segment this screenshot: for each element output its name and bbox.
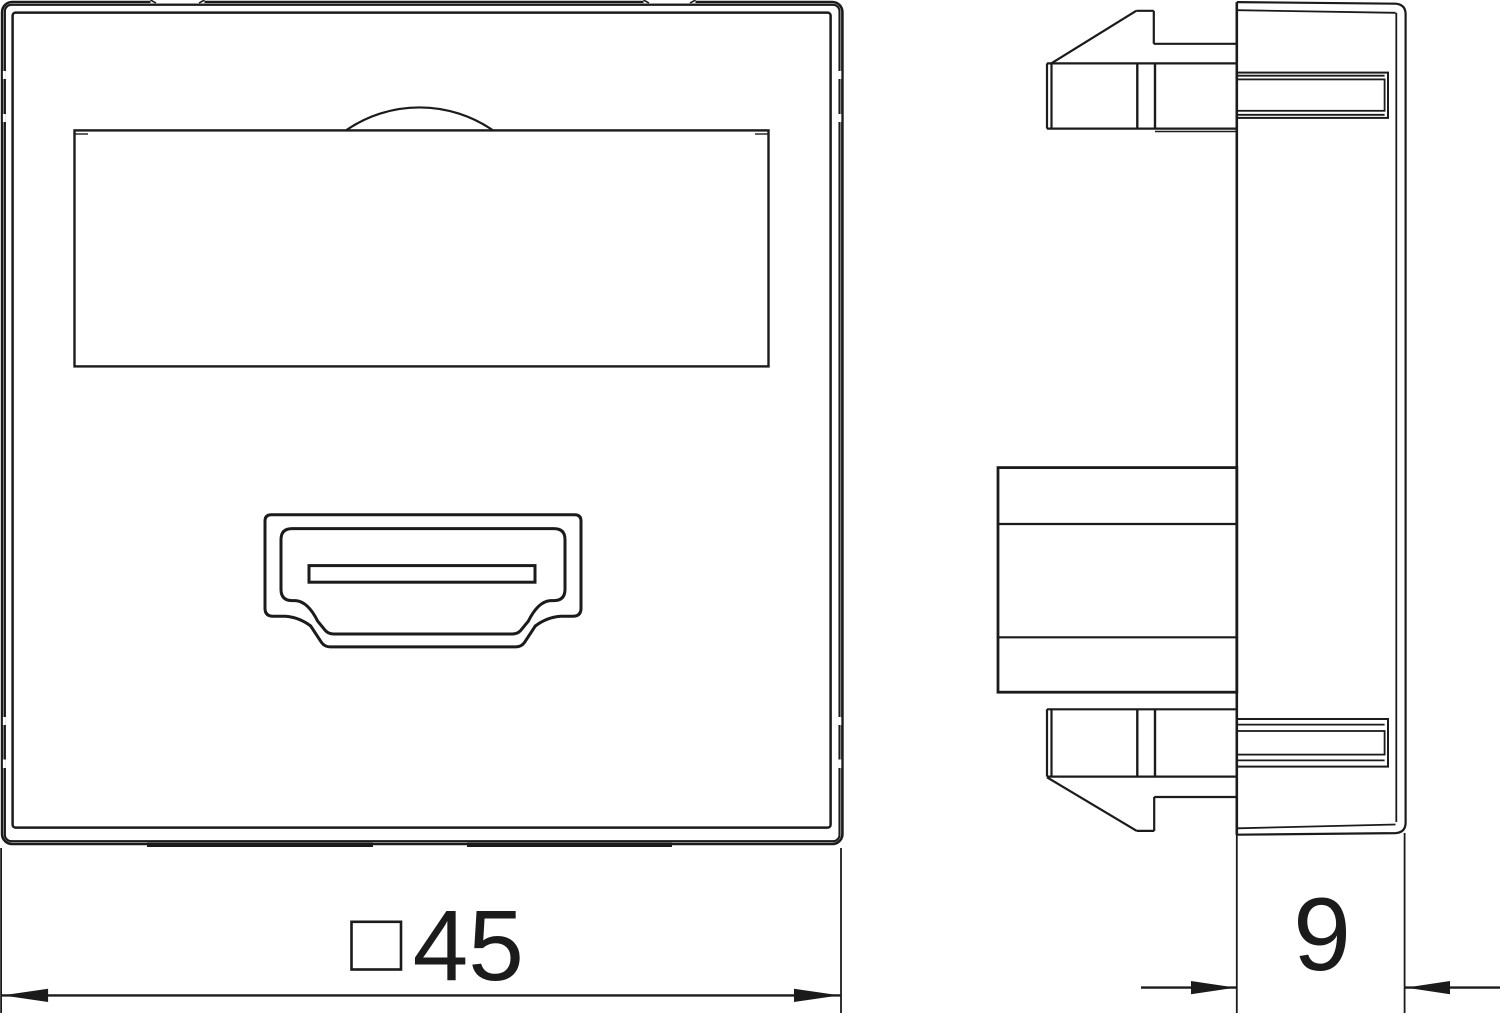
svg-text:45: 45 xyxy=(413,890,524,1002)
svg-text:9: 9 xyxy=(1293,877,1351,993)
